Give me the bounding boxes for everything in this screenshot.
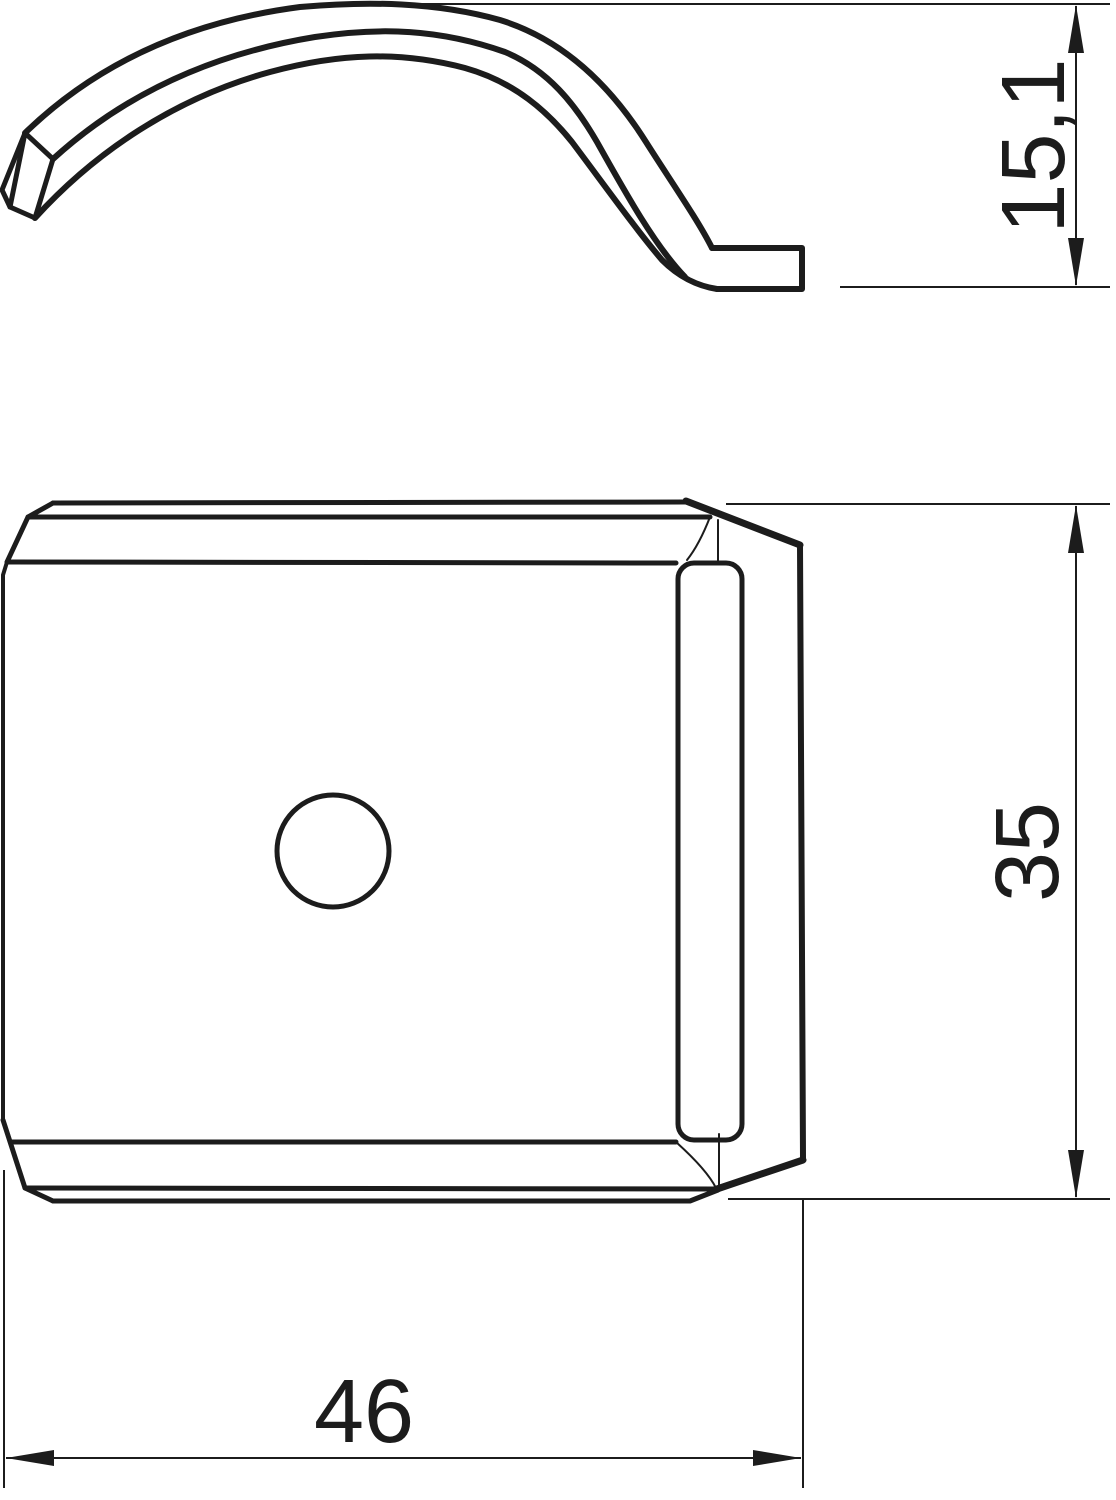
- side-view-middle-arc: [53, 31, 685, 277]
- dimension-46: 46: [4, 1170, 803, 1488]
- front-left-edge: [3, 562, 7, 1120]
- front-bottom-mid-edge: [25, 1188, 716, 1189]
- dim-35-arrow-down: [1068, 1150, 1084, 1198]
- dim-35-label: 35: [978, 802, 1078, 902]
- dimension-15-1: 15,1: [365, 4, 1110, 287]
- dim-46-arrow-right: [753, 1450, 801, 1466]
- technical-drawing-sheet: 15,1: [0, 0, 1116, 1500]
- front-view: [3, 501, 803, 1201]
- front-top-left-bevel: [7, 503, 53, 562]
- dim-46-arrow-left: [6, 1450, 54, 1466]
- front-bottom-back-edge: [53, 1190, 718, 1201]
- front-top-back-edge: [53, 502, 686, 503]
- dim-15-1-label: 15,1: [984, 58, 1084, 233]
- front-top-right-chamfer-curve: [687, 517, 710, 560]
- dim-15-1-arrow-up: [1068, 5, 1084, 53]
- front-face-top-edge: [8, 562, 676, 563]
- side-view-foot: [712, 248, 802, 289]
- front-side-band: [678, 563, 742, 1140]
- dimension-35: 35: [726, 504, 1110, 1199]
- front-top-right-diagonal: [686, 501, 800, 545]
- front-center-hole: [277, 795, 389, 907]
- front-bottom-right-chamfer-curve: [676, 1142, 716, 1188]
- dim-35-arrow-up: [1068, 505, 1084, 553]
- side-view-outer-arc: [25, 4, 712, 248]
- clip-technical-drawing: 15,1: [0, 0, 1116, 1500]
- front-right-outer-edge: [800, 545, 803, 1158]
- dim-15-1-arrow-down: [1068, 238, 1084, 286]
- front-bottom-right-diagonal: [714, 1160, 803, 1190]
- dim-46-label: 46: [314, 1362, 414, 1462]
- side-profile-view: [2, 4, 802, 289]
